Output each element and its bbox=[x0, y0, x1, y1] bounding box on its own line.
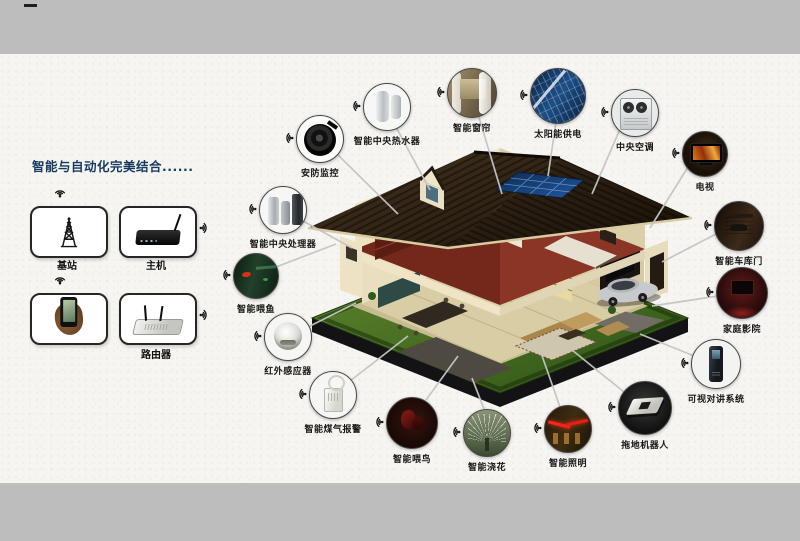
device-label: 智能浇花 bbox=[468, 460, 506, 473]
mopping-robot-icon bbox=[618, 381, 672, 435]
corner-artifact-dash bbox=[24, 4, 37, 7]
device-label: 红外感应器 bbox=[264, 364, 312, 377]
device-label: 太阳能供电 bbox=[534, 127, 582, 140]
device-label: 智能中央处理器 bbox=[250, 237, 317, 250]
device-label: 电视 bbox=[695, 180, 714, 193]
device-fish-feeder: 智能喂鱼 bbox=[201, 253, 311, 315]
central-processor-icon bbox=[259, 186, 307, 234]
wifi-signal-icon bbox=[217, 267, 233, 283]
device-label: 智能煤气报警 bbox=[304, 422, 361, 435]
router-label: 路由器 bbox=[119, 346, 193, 361]
device-label: 拖地机器人 bbox=[621, 438, 669, 451]
wifi-signal-icon bbox=[700, 284, 716, 300]
solar-panel-icon bbox=[530, 68, 586, 124]
host-box bbox=[119, 206, 197, 258]
wifi-signal-icon bbox=[431, 84, 447, 100]
gas-alarm-icon bbox=[309, 371, 357, 419]
device-label: 智能中央热水器 bbox=[354, 134, 421, 147]
wifi-signal-icon bbox=[52, 271, 68, 287]
device-label: 安防监控 bbox=[301, 166, 339, 179]
host-label: 主机 bbox=[119, 257, 193, 272]
device-garage-door: 智能车库门 bbox=[684, 201, 794, 267]
device-label: 家庭影院 bbox=[723, 322, 761, 335]
wifi-signal-icon bbox=[666, 145, 682, 161]
wifi-signal-icon bbox=[248, 328, 264, 344]
poster-title: 智能与自动化完美结合...... bbox=[32, 156, 194, 175]
smart-lighting-icon bbox=[544, 405, 592, 453]
device-label: 智能车库门 bbox=[715, 254, 763, 267]
device-infrared-sensor: 红外感应器 bbox=[233, 313, 343, 377]
wifi-signal-icon bbox=[347, 98, 363, 114]
wifi-signal-icon bbox=[243, 201, 259, 217]
device-label: 智能喂鸟 bbox=[393, 452, 431, 465]
device-central-processor: 智能中央处理器 bbox=[228, 186, 338, 250]
device-tv: 电视 bbox=[650, 131, 760, 193]
fish-feeder-icon bbox=[233, 253, 279, 299]
home-theater-icon bbox=[716, 267, 768, 319]
wifi-signal-icon bbox=[280, 130, 296, 146]
curtains-icon bbox=[447, 68, 497, 118]
device-label: 智能照明 bbox=[549, 456, 587, 469]
water-heater-icon bbox=[363, 83, 411, 131]
air-conditioner-icon bbox=[611, 89, 659, 137]
sprinkler-icon bbox=[463, 409, 511, 457]
phone-box bbox=[30, 293, 108, 345]
wifi-signal-icon bbox=[197, 220, 213, 236]
bird-feeder-icon bbox=[386, 397, 438, 449]
device-label: 智能窗帘 bbox=[453, 121, 491, 134]
router-icon bbox=[132, 319, 184, 335]
set-top-host-icon bbox=[135, 230, 181, 245]
smartphone-in-hand-icon bbox=[53, 302, 84, 337]
device-home-theater: 家庭影院 bbox=[687, 267, 797, 335]
wifi-signal-icon bbox=[52, 184, 68, 200]
wifi-signal-icon bbox=[595, 104, 611, 120]
device-label: 中央空调 bbox=[616, 140, 654, 153]
garage-door-icon bbox=[714, 201, 764, 251]
router-box bbox=[119, 293, 197, 345]
tv-icon bbox=[682, 131, 728, 177]
radio-tower-icon bbox=[49, 212, 89, 252]
device-gas-alarm: 智能煤气报警 bbox=[278, 371, 388, 435]
wifi-signal-icon bbox=[675, 355, 691, 371]
base-station-label: 基站 bbox=[30, 257, 104, 272]
wifi-signal-icon bbox=[698, 217, 714, 233]
infrared-sensor-icon bbox=[264, 313, 312, 361]
wifi-signal-icon bbox=[293, 386, 309, 402]
smart-home-poster: { "poster": { "title": "智能与自动化完美结合......… bbox=[0, 0, 800, 541]
base-station-box bbox=[30, 206, 108, 258]
device-label: 智能喂鱼 bbox=[237, 302, 275, 315]
wifi-signal-icon bbox=[514, 87, 530, 103]
